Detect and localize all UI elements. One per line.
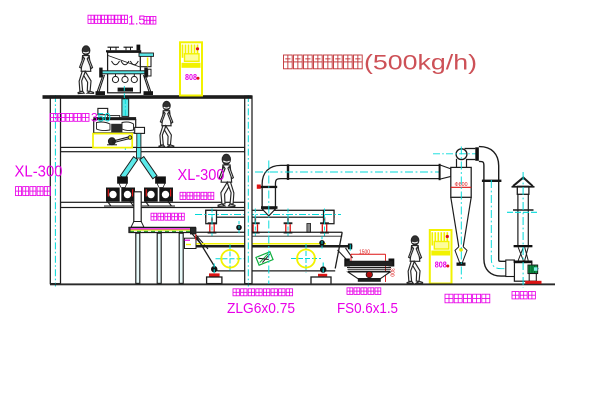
- svg-text:808: 808: [435, 260, 447, 270]
- svg-text:ZLG6x0.75: ZLG6x0.75: [227, 301, 295, 317]
- svg-text:1.5: 1.5: [128, 14, 145, 28]
- svg-text:FS0.6x1.5: FS0.6x1.5: [337, 301, 398, 317]
- svg-text:50: 50: [98, 110, 112, 124]
- svg-text:(500kg/h): (500kg/h): [364, 51, 477, 75]
- svg-text:1500: 1500: [359, 249, 370, 255]
- svg-text:XL-300: XL-300: [178, 167, 225, 184]
- svg-text:808: 808: [185, 72, 197, 82]
- svg-text:XL-300: XL-300: [15, 163, 63, 180]
